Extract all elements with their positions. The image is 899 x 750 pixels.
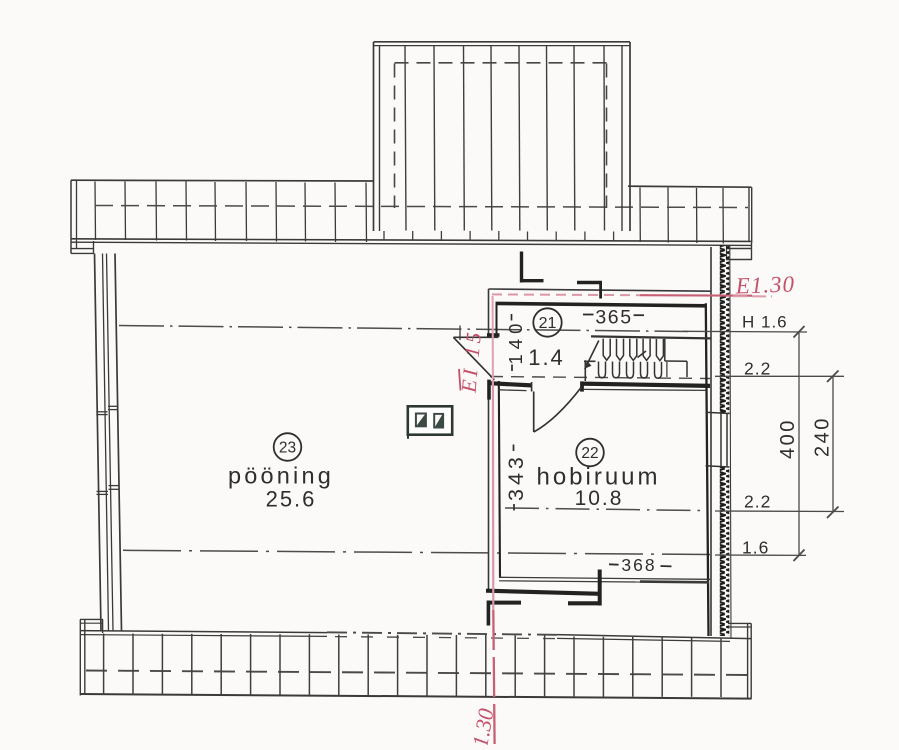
svg-text:H 1.6: H 1.6 <box>742 313 788 332</box>
svg-text:25.6: 25.6 <box>266 487 317 512</box>
svg-text:365: 365 <box>595 306 632 328</box>
svg-text:22: 22 <box>581 445 598 462</box>
svg-text:2.2: 2.2 <box>744 492 771 512</box>
svg-text:343: 343 <box>504 453 528 501</box>
svg-text:240: 240 <box>812 416 834 457</box>
svg-text:140: 140 <box>505 319 526 365</box>
svg-text:10.8: 10.8 <box>575 487 624 510</box>
svg-text:2.2: 2.2 <box>744 359 771 379</box>
svg-text:21: 21 <box>539 315 557 332</box>
svg-text:1.4: 1.4 <box>528 345 565 370</box>
svg-text:368: 368 <box>621 555 656 575</box>
svg-text:pööning: pööning <box>228 463 334 489</box>
svg-text:1.6: 1.6 <box>742 538 769 558</box>
svg-text:400: 400 <box>777 418 799 459</box>
svg-text:E1.30: E1.30 <box>734 271 795 298</box>
svg-text:23: 23 <box>279 439 296 456</box>
